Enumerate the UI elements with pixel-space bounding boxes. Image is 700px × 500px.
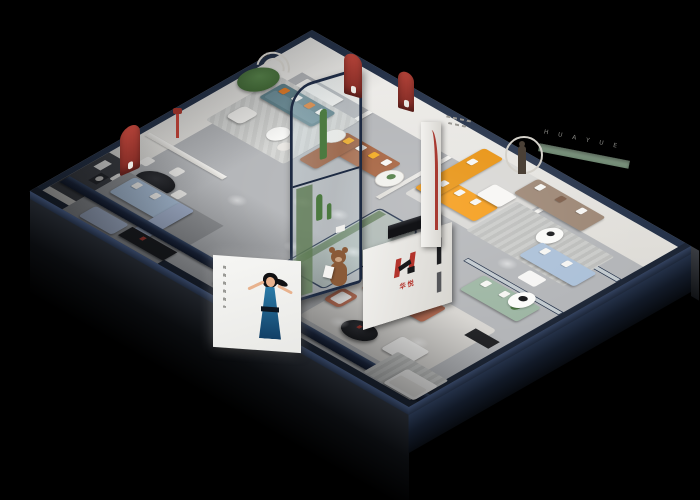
niche-vase	[128, 161, 133, 170]
niche-vase	[404, 99, 409, 107]
shelf-object-white	[336, 225, 345, 234]
red-ribbon-decor	[425, 130, 438, 230]
right-corner-wall-cap	[691, 246, 699, 301]
woman-face	[266, 277, 275, 288]
woman-blue-dress	[259, 286, 281, 340]
brand-logo-mark	[395, 251, 416, 280]
red-arch-niche	[398, 70, 414, 113]
woman-arm-left	[247, 280, 264, 290]
wall-sconce	[437, 271, 441, 292]
red-arch-niche	[120, 122, 140, 177]
statue-head	[519, 141, 525, 147]
billboard-woman-figure	[247, 271, 293, 346]
floor-spotlight	[221, 191, 253, 209]
cactus	[316, 193, 322, 221]
white-column-red-ribbon	[421, 122, 441, 247]
cactus	[327, 203, 332, 220]
bronze-statue	[518, 146, 526, 174]
red-arch-niche	[344, 51, 362, 98]
red-floor-lamp	[176, 112, 179, 138]
cactus	[320, 108, 327, 160]
billboard-vertical-text	[223, 266, 226, 308]
teddy-bear-mascot	[328, 246, 350, 290]
dining-chair	[168, 167, 186, 177]
glass-mid-rail	[293, 166, 360, 188]
niche-vase	[351, 85, 356, 93]
showroom-scene: 华悦 H U A Y U E	[0, 0, 700, 500]
facade-billboard	[213, 255, 301, 353]
